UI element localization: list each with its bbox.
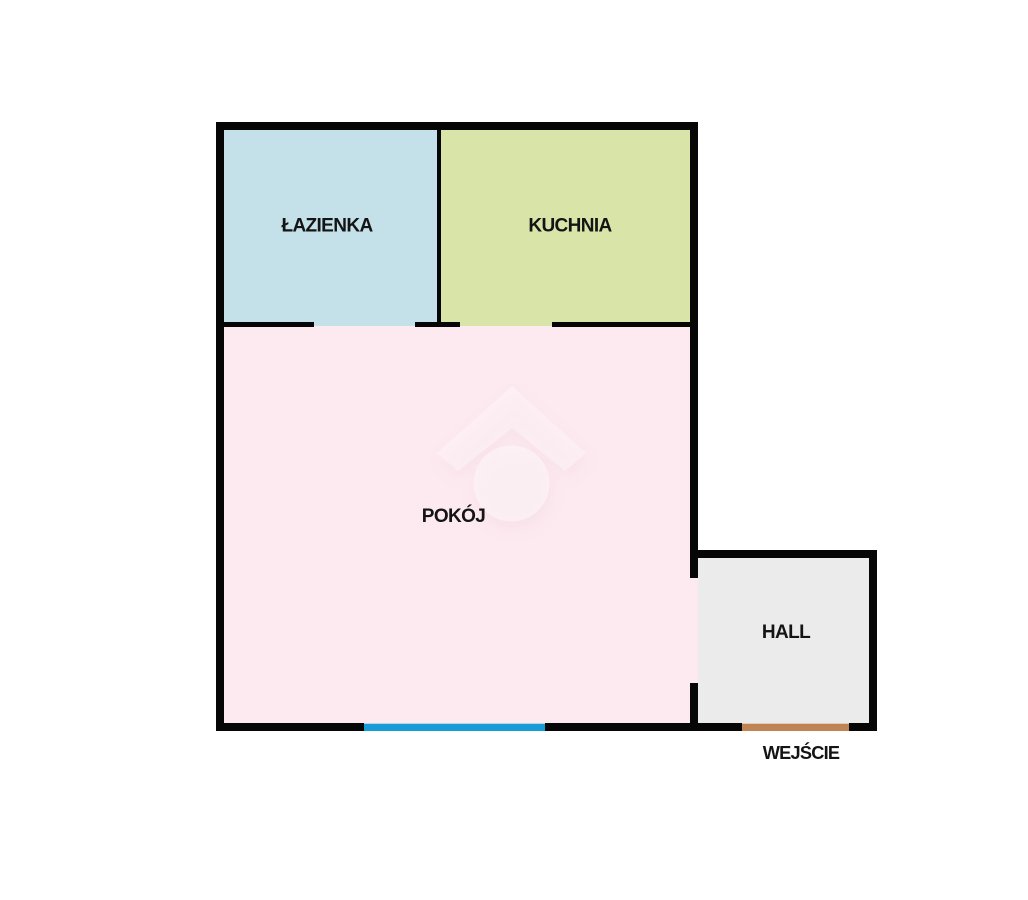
svg-text:ŁAZIENKA: ŁAZIENKA	[281, 216, 373, 237]
svg-text:KUCHNIA: KUCHNIA	[528, 216, 612, 237]
svg-text:WEJŚCIE: WEJŚCIE	[763, 742, 840, 763]
svg-text:HALL: HALL	[762, 622, 811, 643]
svg-text:POKÓJ: POKÓJ	[422, 505, 485, 527]
